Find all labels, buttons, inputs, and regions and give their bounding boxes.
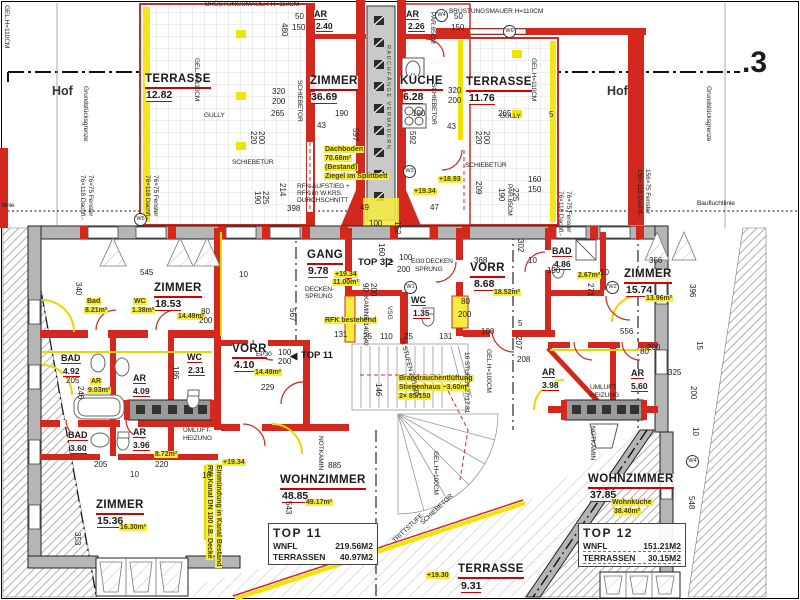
top12-summary-box: TOP 12 WNFL 151.21M2 TERRASSEN 30.15M2 <box>578 523 686 567</box>
staircase <box>352 344 498 514</box>
top11-wnfl-value: 219.56M2 <box>335 541 373 551</box>
top12-wnfl-label: WNFL <box>583 541 608 551</box>
floorplan-graphics <box>0 0 800 600</box>
top11-summary-box: TOP 11 WNFL 219.56M2 TERRASSEN 40.97M2 <box>268 523 378 565</box>
top12-title: TOP 12 <box>583 526 681 540</box>
top11-title: TOP 11 <box>273 526 373 540</box>
top12-terrassen-row: TERRASSEN 30.15M2 <box>583 553 681 564</box>
top11-terrassen-value: 40.97M2 <box>340 552 373 562</box>
interior-walls <box>40 228 658 460</box>
top12-terrassen-label: TERRASSEN <box>583 553 635 563</box>
top11-wnfl-label: WNFL <box>273 541 298 551</box>
top11-terrassen-row: TERRASSEN 40.97M2 <box>273 552 373 562</box>
top12-terrassen-value: 30.15M2 <box>648 553 681 563</box>
floorplan-page: TERRASSE12.82ZIMMER36.69KÜCHE6.28TERRASS… <box>0 0 800 600</box>
top11-terrassen-label: TERRASSEN <box>273 552 325 562</box>
top11-wnfl-row: WNFL 219.56M2 <box>273 541 373 551</box>
top12-wnfl-row: WNFL 151.21M2 <box>583 541 681 552</box>
diagonal-wall <box>548 348 604 408</box>
top12-wnfl-value: 151.21M2 <box>643 541 681 551</box>
